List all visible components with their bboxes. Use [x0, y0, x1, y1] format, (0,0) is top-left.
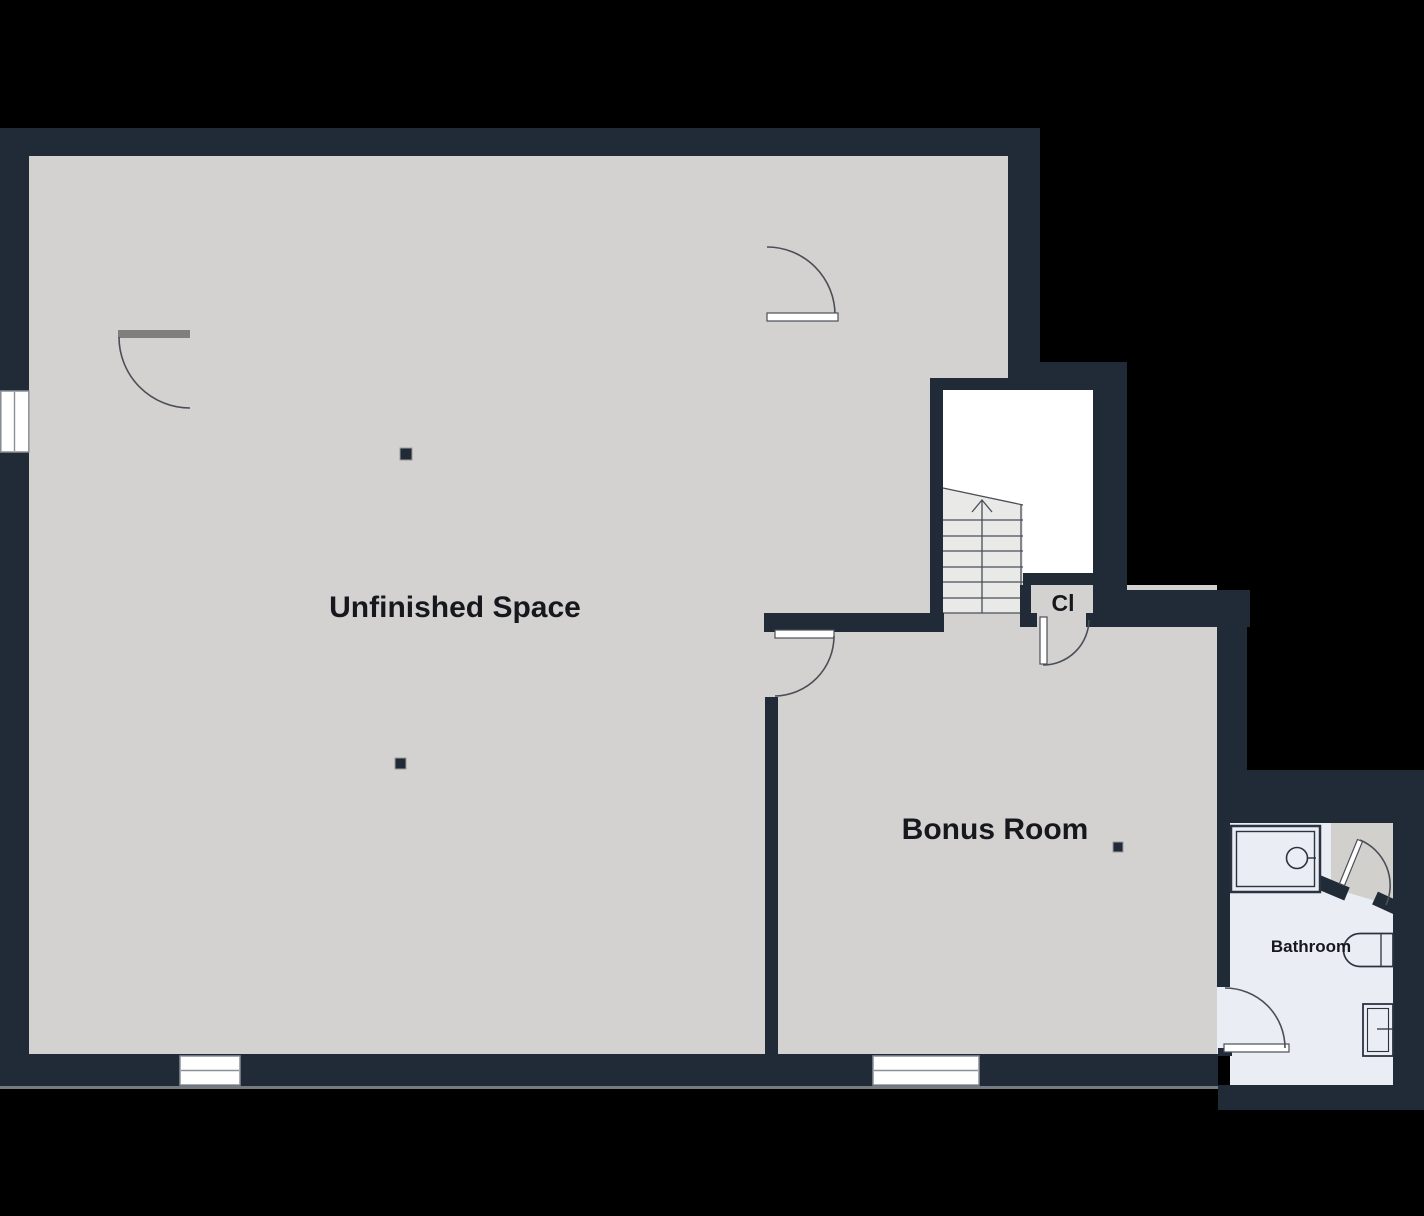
unfinished-space-floor-upper	[29, 156, 1008, 380]
door-leaf-bathroom-icon	[1224, 1044, 1289, 1052]
wall-bonus-room-right	[1217, 617, 1247, 795]
door-leaf-top-icon	[767, 313, 838, 321]
door-leaf-left-icon	[118, 330, 190, 338]
shower-drain-icon	[1287, 848, 1308, 869]
wall-top	[0, 128, 1040, 156]
room-label-unfinished-space: Unfinished Space	[329, 591, 581, 624]
door-leaf-closet-icon	[1040, 617, 1047, 664]
column-marker-icon	[1113, 842, 1123, 852]
column-marker-icon	[395, 758, 406, 769]
foundation-line	[0, 1086, 1218, 1089]
column-marker-icon	[400, 448, 412, 460]
wall-room-divider	[765, 697, 778, 1054]
wall-left	[0, 128, 29, 1086]
wall-closet-left	[1020, 585, 1031, 613]
door-leaf-bonus-icon	[775, 630, 834, 638]
room-label-closet: Cl	[1052, 590, 1075, 616]
floor-plan-page: Unfinished Space Bonus Room Cl Bathroom	[0, 0, 1424, 1216]
wall-under-landing	[1023, 573, 1093, 585]
wall-bonus-room-top	[764, 613, 944, 632]
wall-bathroom-left	[1217, 795, 1230, 987]
wall-stairwell-top-inner	[930, 378, 1008, 390]
wall-closet-left-stub	[1020, 613, 1037, 627]
wall-bathroom-right	[1393, 770, 1424, 1110]
wall-stairwell-left	[930, 390, 943, 627]
wall-right-upper	[1008, 128, 1040, 390]
floor-plan-svg: Unfinished Space Bonus Room Cl Bathroom	[0, 0, 1424, 1216]
wall-stairwell-top	[1008, 362, 1127, 390]
room-label-bathroom: Bathroom	[1271, 937, 1351, 956]
room-label-bonus-room: Bonus Room	[902, 813, 1089, 846]
wall-stairwell-right	[1093, 390, 1127, 617]
